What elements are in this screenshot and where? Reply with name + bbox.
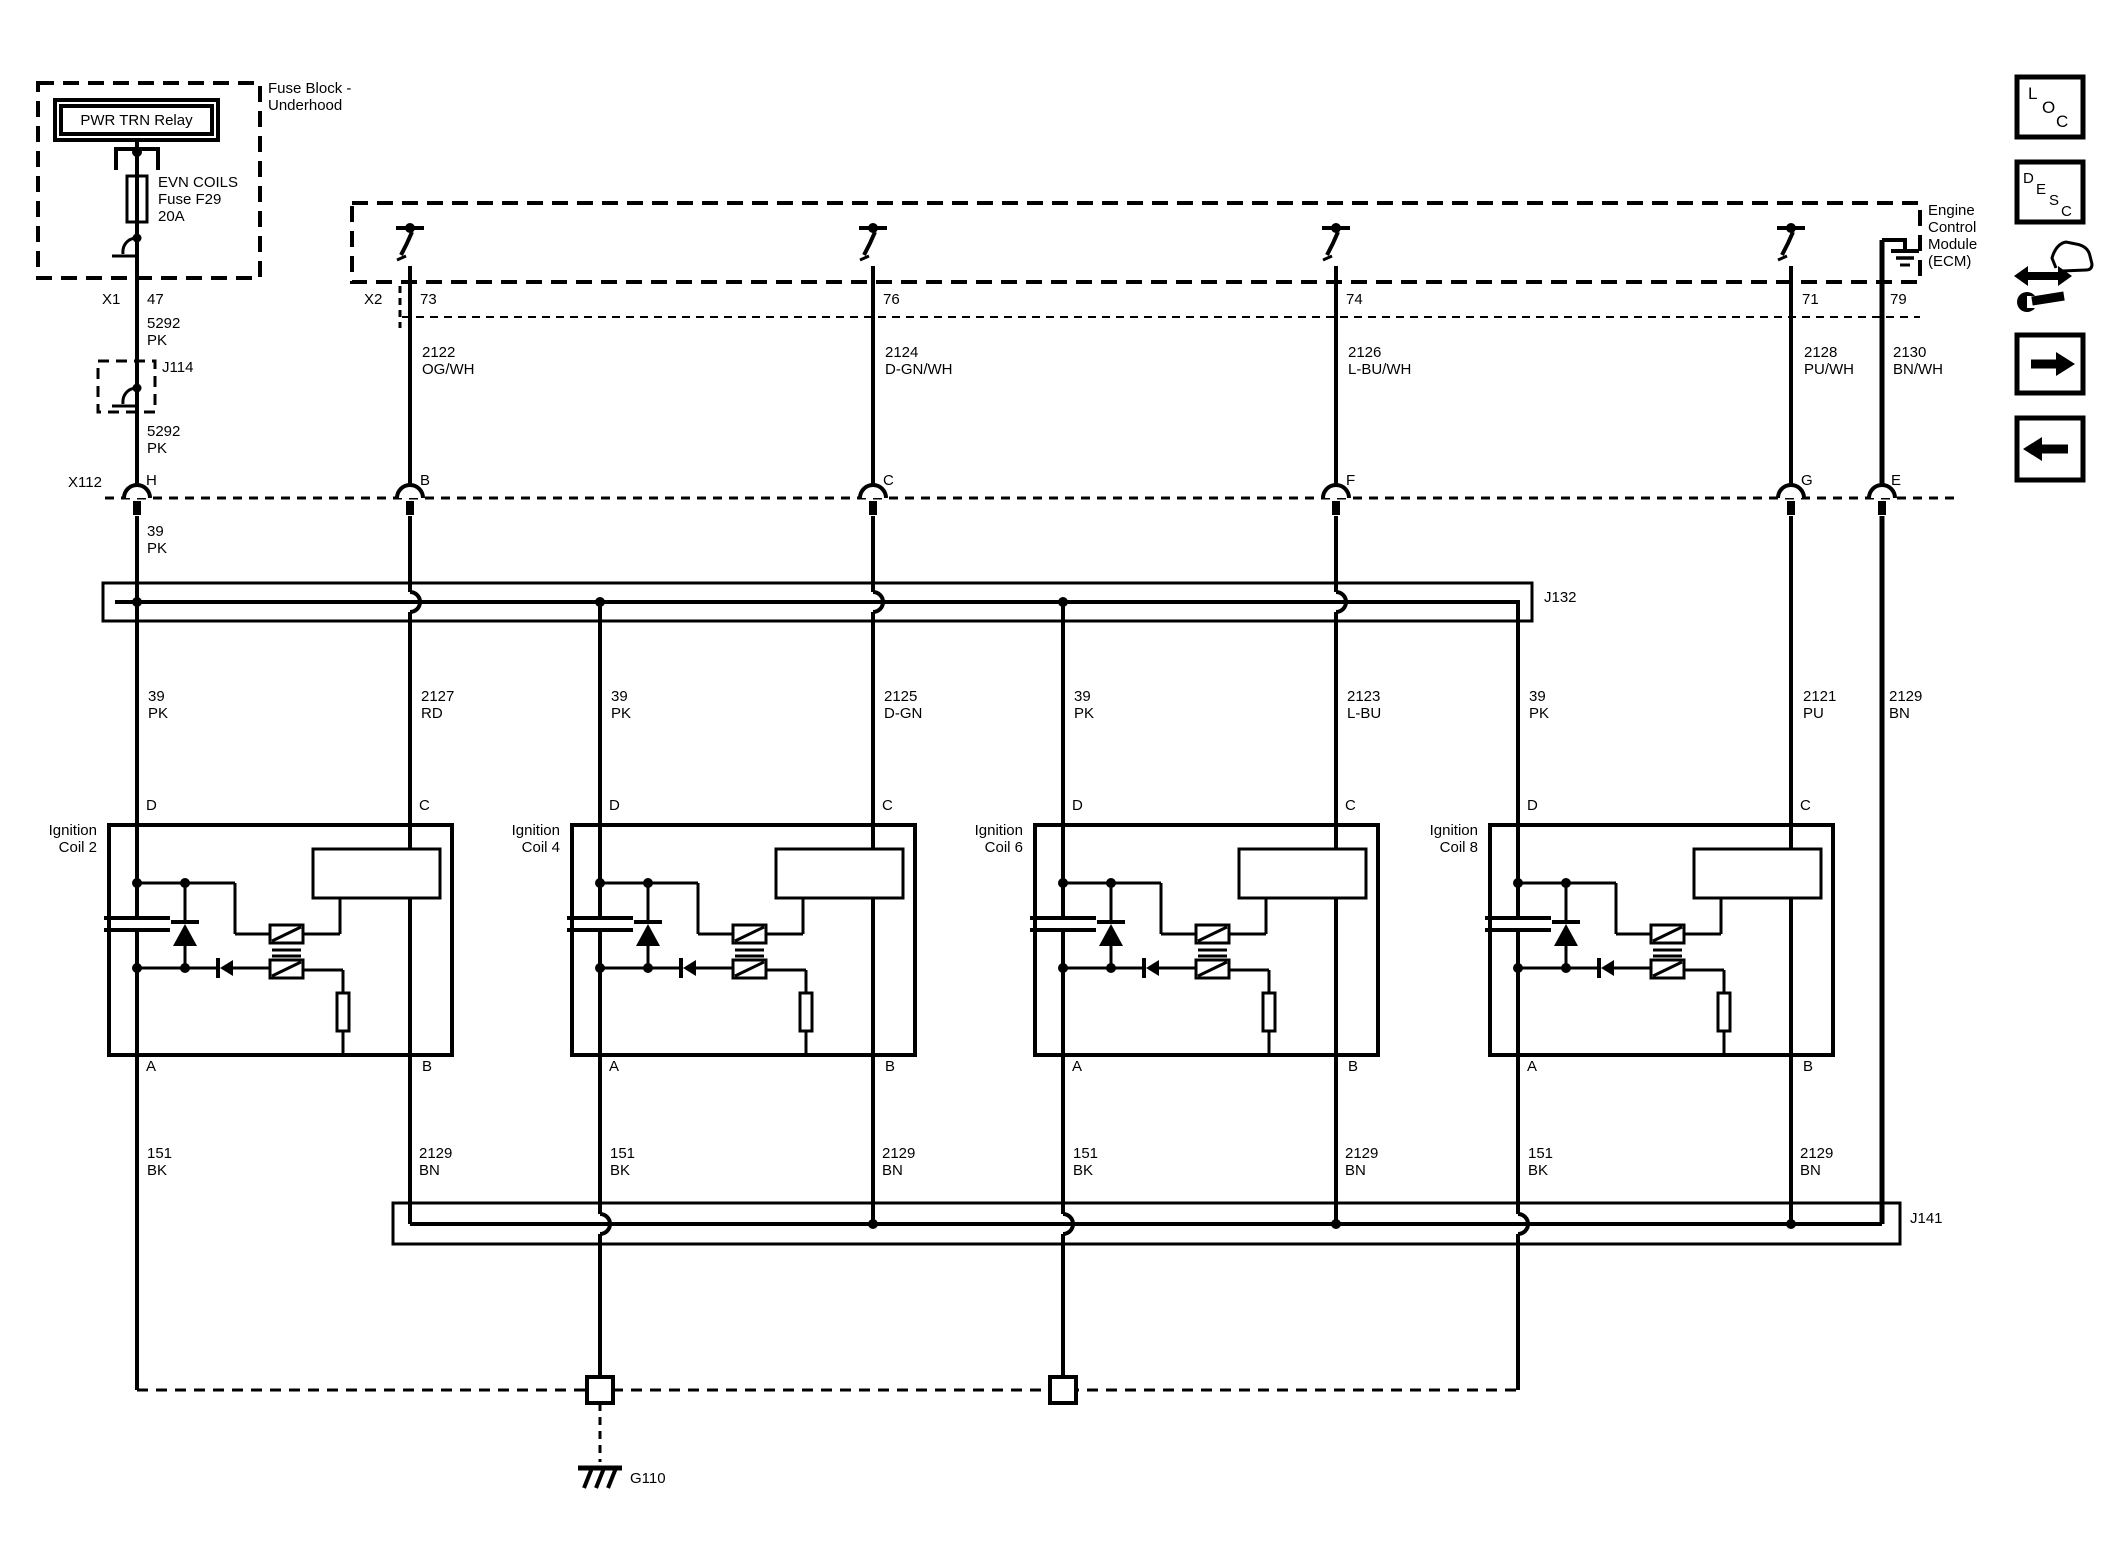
fuse-block-title-line2: Underhood — [268, 97, 351, 114]
ignition-coil-2-title: Ignition Coil 2 — [0, 822, 97, 856]
x112-terminal-g: G — [1801, 472, 1813, 489]
wire-color: PK — [1074, 705, 1094, 722]
wire-circuit: 2122 — [422, 344, 475, 361]
ecm-title-line4: (ECM) — [1928, 253, 1977, 270]
wire-circuit: 5292 — [147, 315, 180, 332]
wire-color: BN — [1345, 1162, 1378, 1179]
wire-circuit: 2129 — [1345, 1145, 1378, 1162]
coil4-pin-d: D — [609, 797, 620, 814]
wire-circuit: 2123 — [1347, 688, 1381, 705]
coil6-pin-c: C — [1345, 797, 1356, 814]
x112-terminal-h: H — [146, 472, 157, 489]
x112-terminal-b: B — [420, 472, 430, 489]
coil6-pin-b: B — [1348, 1058, 1358, 1075]
inline-connector-square-1 — [587, 1377, 613, 1403]
wire-circuit: 39 — [611, 688, 631, 705]
ecm-driver-switch-73 — [396, 223, 424, 260]
coil8-pin-c: C — [1800, 797, 1811, 814]
loc-letter: C — [2056, 112, 2068, 131]
wire-circuit: 39 — [1529, 688, 1549, 705]
ecm-pin-71: 71 — [1802, 291, 1819, 308]
wire-color: BN — [882, 1162, 915, 1179]
loc-letter: O — [2042, 98, 2055, 117]
wire-circuit: 2129 — [882, 1145, 915, 1162]
wire-color: BN — [419, 1162, 452, 1179]
ground-distribution — [137, 1377, 1518, 1488]
wire-color: D-GN — [884, 705, 922, 722]
vehicle-wrench-icon[interactable] — [2014, 242, 2092, 312]
wire-circuit: 2127 — [421, 688, 454, 705]
wire-color: PK — [1529, 705, 1549, 722]
wire-label-151-coil8: 151 BK — [1528, 1145, 1553, 1179]
wire-label-mid-3: 2125 D-GN — [884, 688, 922, 722]
wire-color: BK — [1528, 1162, 1553, 1179]
ignition-coil-6-title: Ignition Coil 6 — [913, 822, 1023, 856]
ecm-pin-73: 73 — [420, 291, 437, 308]
wire-circuit: 2130 — [1893, 344, 1943, 361]
coil4-pin-c: C — [882, 797, 893, 814]
connector-x1-label: X1 — [102, 291, 120, 308]
wire-label-mid-8: 2129 BN — [1889, 688, 1922, 722]
wire-color: RD — [421, 705, 454, 722]
wire-label-2130: 2130 BN/WH — [1893, 344, 1943, 378]
wire-label-mid-0: 39 PK — [148, 688, 168, 722]
wire-label-mid-5: 2123 L-BU — [1347, 688, 1381, 722]
ignition-coil-4-title: Ignition Coil 4 — [450, 822, 560, 856]
wire-label-5292-lower: 5292 PK — [147, 423, 180, 457]
fuse-label: EVN COILS Fuse F29 20A — [158, 174, 238, 225]
wire-label-2122: 2122 OG/WH — [422, 344, 475, 378]
coil6-pin-d: D — [1072, 797, 1083, 814]
wire-color: PK — [147, 540, 167, 557]
wire-circuit: 2125 — [884, 688, 922, 705]
wire-circuit: 5292 — [147, 423, 180, 440]
wire-label-2129-coil2: 2129 BN — [419, 1145, 452, 1179]
x112-connector-line — [105, 485, 1955, 515]
wire-circuit: 2129 — [1800, 1145, 1833, 1162]
wire-label-mid-1: 2127 RD — [421, 688, 454, 722]
wire-color: BN — [1800, 1162, 1833, 1179]
wire-label-5292-upper: 5292 PK — [147, 315, 180, 349]
wire-color: PU — [1803, 705, 1836, 722]
connector-x2-label: X2 — [364, 291, 382, 308]
wire-color: BK — [1073, 1162, 1098, 1179]
wire-circuit: 2124 — [885, 344, 953, 361]
ecm-pin-76: 76 — [883, 291, 900, 308]
loc-letter: L — [2028, 84, 2037, 103]
pwr-trn-relay-label: PWR TRN Relay — [55, 100, 218, 140]
wire-color: BK — [610, 1162, 635, 1179]
wire-label-2129-coil6: 2129 BN — [1345, 1145, 1378, 1179]
fuse-rating: 20A — [158, 208, 238, 225]
wire-color: L-BU/WH — [1348, 361, 1411, 378]
wire-label-151-coil4: 151 BK — [610, 1145, 635, 1179]
coil-title-line2: Coil 6 — [913, 839, 1023, 856]
coil8-pin-b: B — [1803, 1058, 1813, 1075]
left-arrow-icon — [2023, 437, 2068, 461]
wire-circuit: 2129 — [419, 1145, 452, 1162]
wiring-diagram-canvas: L O C D E S C — [0, 0, 2124, 1564]
ecm-driver-switch-71 — [1777, 223, 1805, 260]
wire-color: D-GN/WH — [885, 361, 953, 378]
wire-color: BK — [147, 1162, 172, 1179]
wire-color: PK — [147, 332, 180, 349]
coil2-pin-b: B — [422, 1058, 432, 1075]
desc-letter: D — [2023, 170, 2034, 187]
ecm-title-line1: Engine — [1928, 202, 1977, 219]
coil-title-line2: Coil 4 — [450, 839, 560, 856]
ignition-coil-6-box — [1030, 825, 1378, 1055]
wire-circuit: 151 — [1528, 1145, 1553, 1162]
coil6-pin-a: A — [1072, 1058, 1082, 1075]
wire-circuit: 2121 — [1803, 688, 1836, 705]
nav-icons: L O C D E S C — [2014, 77, 2092, 480]
coil-title-line2: Coil 2 — [0, 839, 97, 856]
coil4-pin-b: B — [885, 1058, 895, 1075]
ecm-driver-switch-76 — [859, 223, 887, 260]
wire-label-151-coil2: 151 BK — [147, 1145, 172, 1179]
coil8-pin-d: D — [1527, 797, 1538, 814]
coil-title-line1: Ignition — [0, 822, 97, 839]
j141-splice-band — [393, 1203, 1900, 1244]
fuse-block-title: Fuse Block - Underhood — [268, 80, 351, 114]
pin-47-label: 47 — [147, 291, 164, 308]
wire-circuit: 2129 — [1889, 688, 1922, 705]
wire-color: PK — [611, 705, 631, 722]
coil2-pin-d: D — [146, 797, 157, 814]
wire-color: OG/WH — [422, 361, 475, 378]
wire-label-2129-coil8: 2129 BN — [1800, 1145, 1833, 1179]
coil-title-line2: Coil 8 — [1368, 839, 1478, 856]
coil4-pin-a: A — [609, 1058, 619, 1075]
fuse-id: Fuse F29 — [158, 191, 238, 208]
wire-label-151-coil6: 151 BK — [1073, 1145, 1098, 1179]
j132-splice-band — [103, 583, 1532, 825]
wiring-diagram-page: L O C D E S C Fuse Block - Underhood PWR… — [0, 0, 2124, 1564]
ecm-title: Engine Control Module (ECM) — [1928, 202, 1977, 270]
inline-connector-square-2 — [1050, 1377, 1076, 1403]
coil-title-line1: Ignition — [450, 822, 560, 839]
wire-color: BN — [1889, 705, 1922, 722]
right-arrow-icon — [2031, 352, 2075, 376]
wire-label-39-upper: 39 PK — [147, 523, 167, 557]
desc-letter: S — [2049, 192, 2059, 209]
wire-color: PU/WH — [1804, 361, 1854, 378]
x112-label: X112 — [68, 474, 102, 491]
wire-label-mid-2: 39 PK — [611, 688, 631, 722]
wire-circuit: 151 — [147, 1145, 172, 1162]
wire-color: PK — [148, 705, 168, 722]
wire-label-2128: 2128 PU/WH — [1804, 344, 1854, 378]
wire-label-mid-6: 39 PK — [1529, 688, 1549, 722]
ecm-driver-switch-74 — [1322, 223, 1350, 260]
wire-circuit: 39 — [1074, 688, 1094, 705]
wire-label-2124: 2124 D-GN/WH — [885, 344, 953, 378]
wire-circuit: 2126 — [1348, 344, 1411, 361]
wire-label-mid-4: 39 PK — [1074, 688, 1094, 722]
wire-circuit: 2128 — [1804, 344, 1854, 361]
desc-letter: E — [2036, 181, 2046, 198]
fuse-block-title-line1: Fuse Block - — [268, 80, 351, 97]
ecm-outline — [352, 203, 1920, 328]
wire-circuit: 151 — [610, 1145, 635, 1162]
wire-color: BN/WH — [1893, 361, 1943, 378]
wire-label-2129-coil4: 2129 BN — [882, 1145, 915, 1179]
coil-title-line1: Ignition — [913, 822, 1023, 839]
x112-terminal-e: E — [1891, 472, 1901, 489]
g110-ground-symbol — [578, 1468, 622, 1488]
x112-terminal-c: C — [883, 472, 894, 489]
ecm-pin-79: 79 — [1890, 291, 1907, 308]
wire-color: PK — [147, 440, 180, 457]
wire-circuit: 151 — [1073, 1145, 1098, 1162]
coil2-pin-a: A — [146, 1058, 156, 1075]
coil8-pin-a: A — [1527, 1058, 1537, 1075]
wire-circuit: 39 — [147, 523, 167, 540]
ignition-coil-2-box — [104, 825, 452, 1055]
ecm-internal-ground-symbol — [1882, 240, 1919, 265]
wire-label-mid-7: 2121 PU — [1803, 688, 1836, 722]
ignition-coil-4-box — [567, 825, 915, 1055]
x112-terminal-f: F — [1346, 472, 1355, 489]
j132-label: J132 — [1544, 589, 1577, 606]
wire-circuit: 39 — [148, 688, 168, 705]
desc-letter: C — [2061, 203, 2072, 220]
wire-color: L-BU — [1347, 705, 1381, 722]
ignition-coil-8-box — [1485, 825, 1833, 1055]
ecm-pin-74: 74 — [1346, 291, 1363, 308]
wire-label-2126: 2126 L-BU/WH — [1348, 344, 1411, 378]
ecm-title-line2: Control — [1928, 219, 1977, 236]
j114-connector — [98, 361, 155, 412]
j141-label: J141 — [1910, 1210, 1943, 1227]
coil2-pin-c: C — [419, 797, 430, 814]
coil-title-line1: Ignition — [1368, 822, 1478, 839]
j114-label: J114 — [162, 359, 193, 376]
ignition-coil-8-title: Ignition Coil 8 — [1368, 822, 1478, 856]
ecm-title-line3: Module — [1928, 236, 1977, 253]
g110-label: G110 — [630, 1470, 666, 1487]
fuse-name: EVN COILS — [158, 174, 238, 191]
